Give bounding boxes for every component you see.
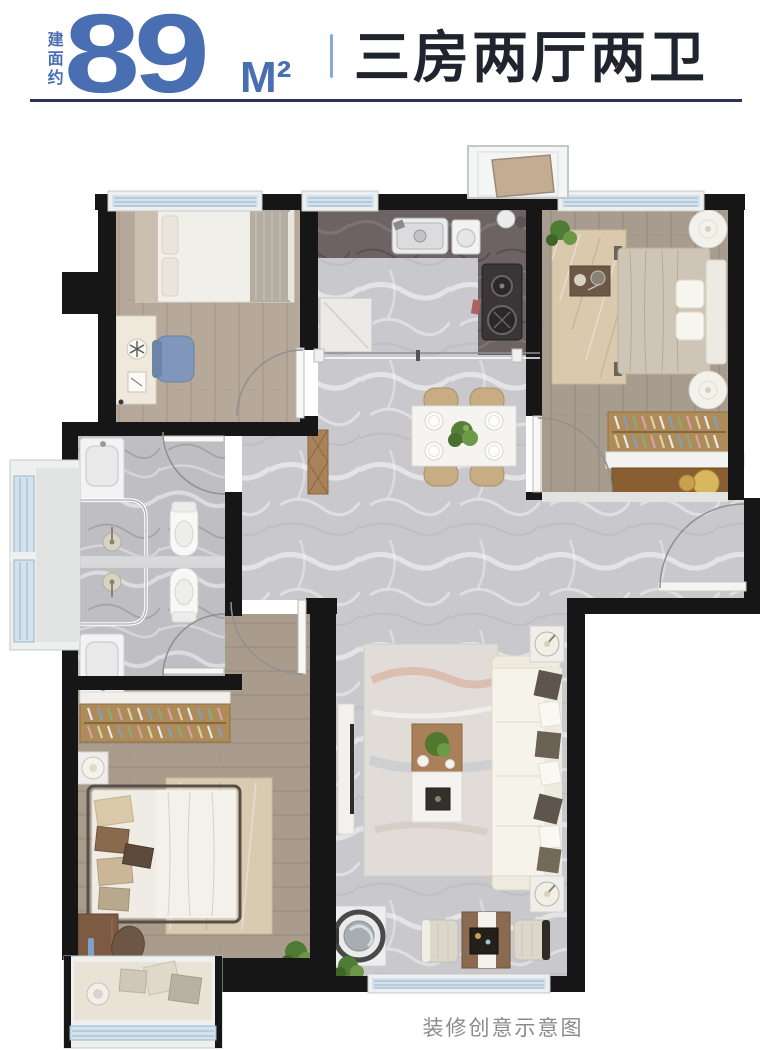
wall-segment [567,598,760,614]
wardrobe-shelf [80,692,230,704]
wall-segment [225,425,242,436]
toilet [170,568,198,622]
wall-segment [300,416,318,436]
tv-console [338,704,354,834]
fridge [320,298,372,352]
wall-segment [62,676,242,690]
flue-box [468,146,568,198]
single-bed [136,210,294,302]
pillow [168,974,201,1004]
wardrobe [608,412,730,452]
sofa-pillow [535,731,562,759]
plan-caption: 装修创意示意图 [423,1012,584,1042]
window-balcony [368,974,550,993]
pillow [94,796,133,827]
shoe-cabinet [308,430,328,494]
armchair [422,920,458,962]
pillow [98,887,129,911]
pillow [676,280,704,308]
nightstand-with-lamp [78,752,108,784]
wardrobe [80,704,230,742]
bathroom-divider-wall [78,556,225,568]
kitchen-sink [392,218,448,254]
double-bed [88,786,240,922]
kitchen-appliance [452,220,480,254]
wall-segment [744,498,760,614]
wall-segment [548,976,576,992]
throw-pillow [122,844,153,869]
pillow [95,826,129,853]
wall-segment [526,194,542,416]
bay-window-seat-bottom [64,956,222,1048]
wall-segment [62,425,78,465]
armchair [514,920,550,960]
washing-machine [332,906,386,966]
kettle-icon [497,210,515,228]
headboard [706,260,726,364]
floor-plan [0,0,770,1050]
wall-segment [300,194,318,350]
sofa-pillow [538,701,561,728]
wardrobe-shelf [606,452,744,468]
coffee-table [412,724,462,822]
sectional-sofa [492,656,563,890]
sofa-pillow [539,825,561,849]
round-nightstand [689,371,727,409]
bay-window-left [10,460,80,650]
pot-icon [515,216,527,228]
sofa-pillow [538,760,562,785]
sofa-pillow [536,847,561,874]
double-bed [614,246,726,376]
window-bedroom-top-left [108,191,262,211]
wall-segment [306,598,337,614]
living-room [332,626,564,979]
wall-segment [310,614,336,992]
wall-segment [336,976,370,992]
pillow [119,969,147,993]
window-bedroom-top-right [558,191,704,211]
wall-segment [218,958,312,992]
lamp-side-table [530,876,564,912]
wall-segment [526,492,542,500]
wall-segment [98,422,318,436]
pillow [676,312,704,340]
wall-segment [225,492,242,616]
toilet [170,502,198,556]
wall-segment [98,194,116,436]
wall-segment [567,598,585,992]
round-nightstand [689,210,727,248]
tv-icon [350,724,354,814]
wall-segment [62,272,116,314]
partition-wall [542,492,728,502]
desk-chair [152,336,194,382]
wall-segment [62,648,78,960]
tea-table [462,912,510,968]
desk [116,316,156,405]
wall-segment [728,194,744,500]
lamp-side-table [530,626,564,662]
tray-icon [470,928,498,954]
window-kitchen [302,191,378,211]
